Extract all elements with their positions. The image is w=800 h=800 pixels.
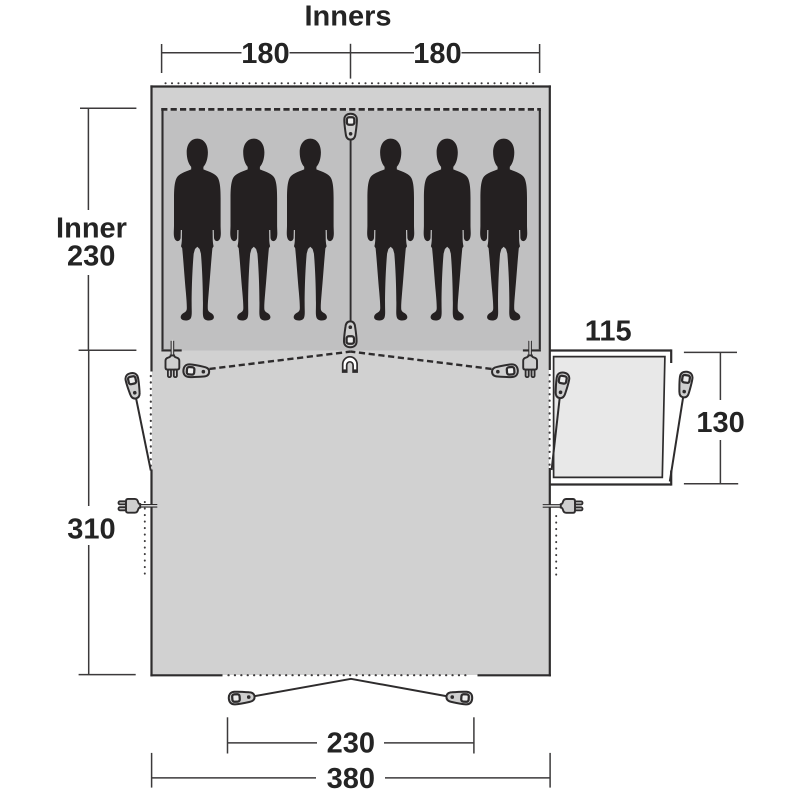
svg-text:130: 130 xyxy=(696,407,744,439)
svg-text:Inners: Inners xyxy=(304,0,391,32)
svg-text:310: 310 xyxy=(67,513,115,545)
svg-text:115: 115 xyxy=(585,315,632,347)
svg-text:180: 180 xyxy=(413,38,461,70)
svg-text:180: 180 xyxy=(241,38,289,70)
svg-text:230: 230 xyxy=(327,728,375,760)
svg-text:230: 230 xyxy=(67,241,115,273)
svg-text:380: 380 xyxy=(327,763,375,795)
svg-text:Inner: Inner xyxy=(56,212,127,244)
